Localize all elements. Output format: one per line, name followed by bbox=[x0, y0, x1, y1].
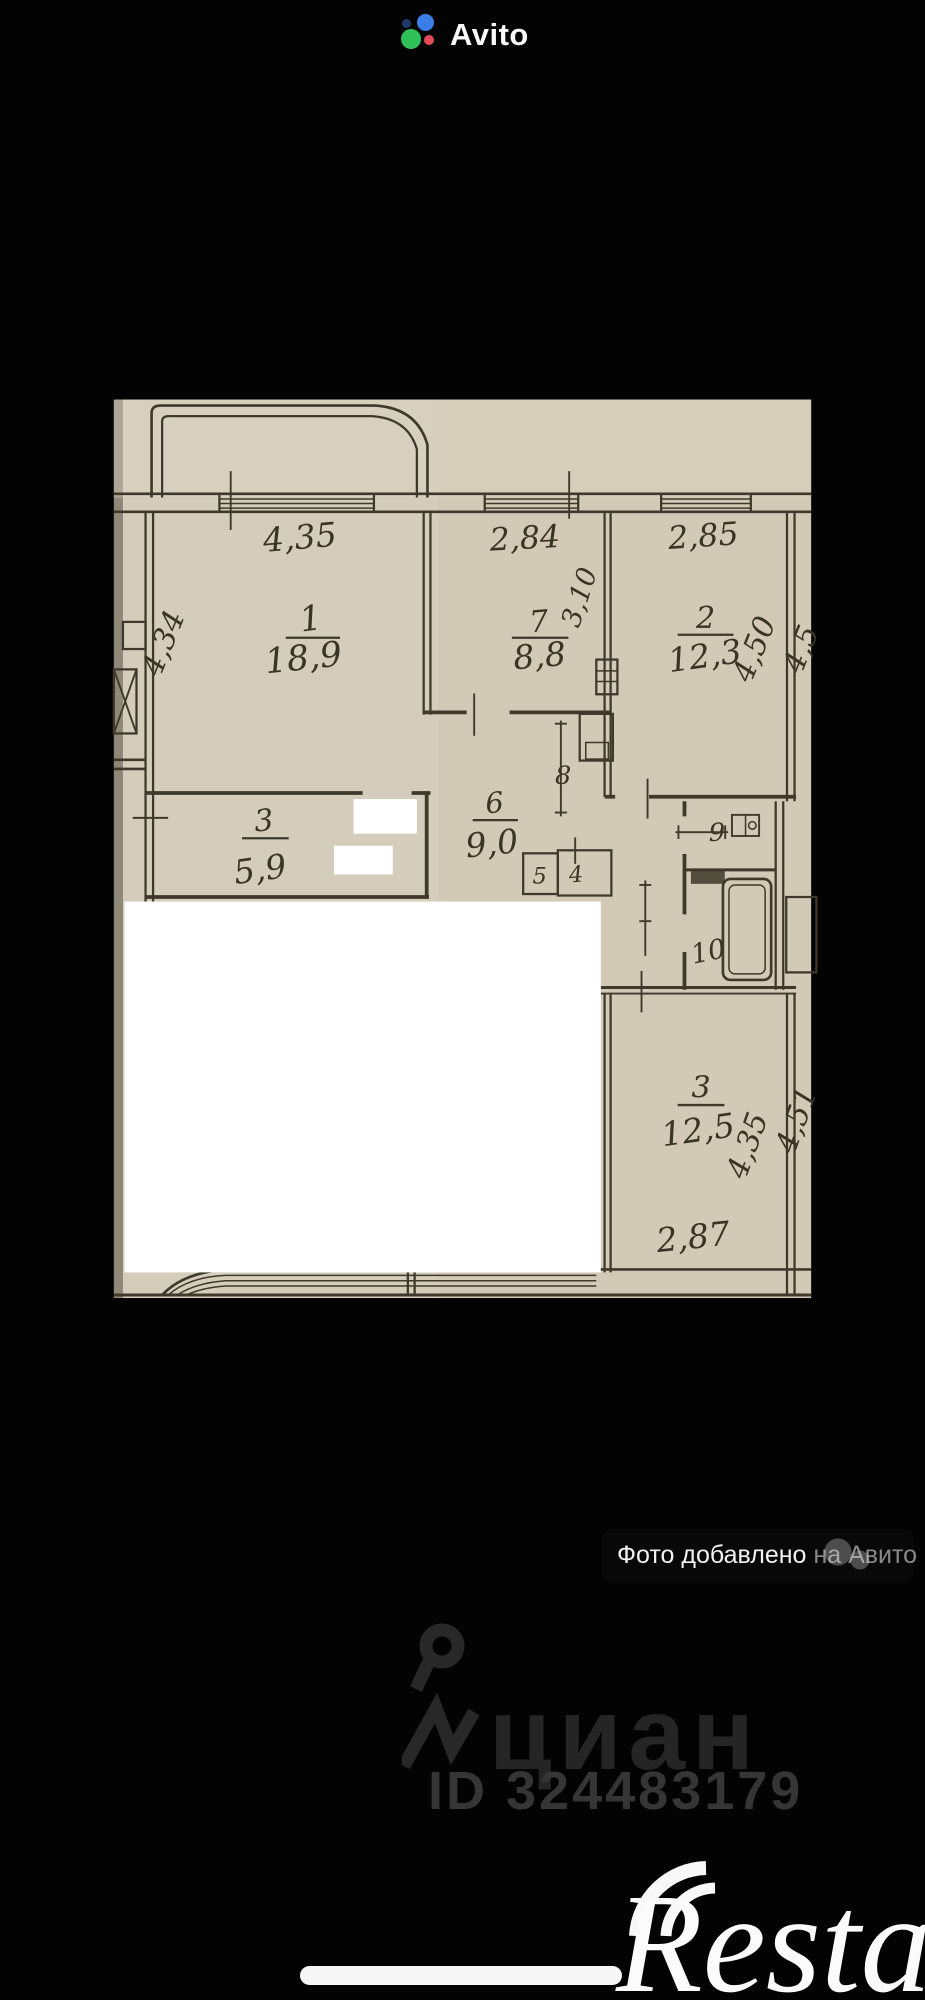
restate-logo-text: Restate bbox=[616, 1872, 925, 2000]
room7-area: 8,8 bbox=[512, 634, 568, 677]
avito-dot-green bbox=[401, 29, 421, 49]
listing-photo-screen: Avito bbox=[0, 0, 925, 2000]
avito-logo: Avito bbox=[398, 12, 529, 58]
dim-room1-width: 4,35 bbox=[260, 515, 338, 560]
closet8-number: 8 bbox=[555, 761, 571, 791]
room2-number: 2 bbox=[695, 601, 715, 636]
closet4-number: 4 bbox=[567, 861, 585, 888]
photo-added-badge: Фото добавлено на Авито bbox=[602, 1529, 914, 1582]
wc-number: 9 bbox=[709, 818, 725, 848]
redaction-small-lower bbox=[334, 846, 393, 875]
dim-room2-width: 2,85 bbox=[666, 516, 740, 557]
avito-logo-text: Avito bbox=[450, 17, 529, 53]
avito-logo-icon bbox=[398, 13, 444, 57]
restate-dash bbox=[300, 1966, 622, 1985]
hall-number: 3 bbox=[253, 803, 275, 840]
dim-room7-width: 2,84 bbox=[488, 519, 561, 559]
cian-listing-id: ID 324483179 bbox=[428, 1764, 803, 1818]
badge-ghost-text: на Авито bbox=[813, 1541, 917, 1570]
corridor-area: 9,0 bbox=[464, 821, 521, 865]
redaction-small-upper bbox=[354, 799, 417, 834]
room3b-number: 3 bbox=[691, 1071, 710, 1106]
avito-dot-navy bbox=[402, 19, 411, 28]
room1-area: 18,9 bbox=[263, 635, 344, 683]
avito-dot-blue bbox=[417, 14, 434, 31]
avito-dot-red bbox=[424, 35, 434, 45]
corridor-number: 6 bbox=[484, 785, 505, 820]
floorplan-photo[interactable]: 4,35 2,84 2,85 1 18,9 4,34 7 8,8 3,10 2 … bbox=[0, 392, 925, 1592]
hall-area: 5,9 bbox=[231, 846, 289, 892]
redaction-large bbox=[124, 902, 600, 1273]
dim-room3b-width: 2,87 bbox=[653, 1213, 732, 1260]
bath-sink bbox=[691, 871, 724, 883]
badge-text: Фото добавлено bbox=[617, 1541, 806, 1570]
cian-logo-icon bbox=[402, 1616, 480, 1781]
plan-left-edge-shadow bbox=[114, 400, 123, 1298]
closet5-number: 5 bbox=[533, 863, 547, 889]
floorplan-drawing: 4,35 2,84 2,85 1 18,9 4,34 7 8,8 3,10 2 … bbox=[0, 392, 925, 1592]
